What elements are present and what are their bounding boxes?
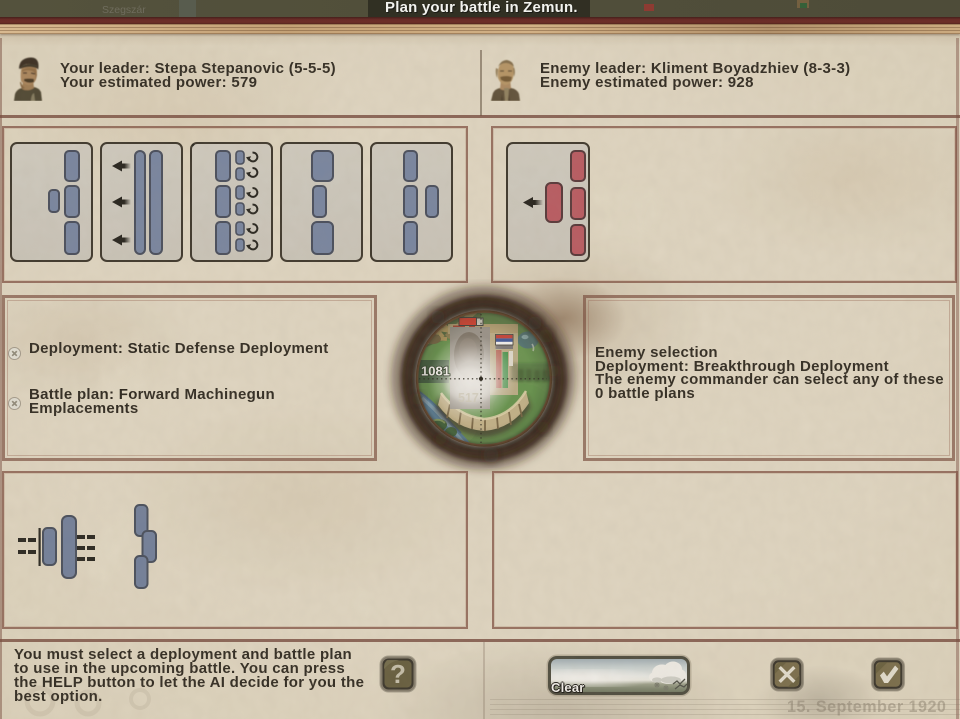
svg-text:?: ? (390, 659, 406, 689)
